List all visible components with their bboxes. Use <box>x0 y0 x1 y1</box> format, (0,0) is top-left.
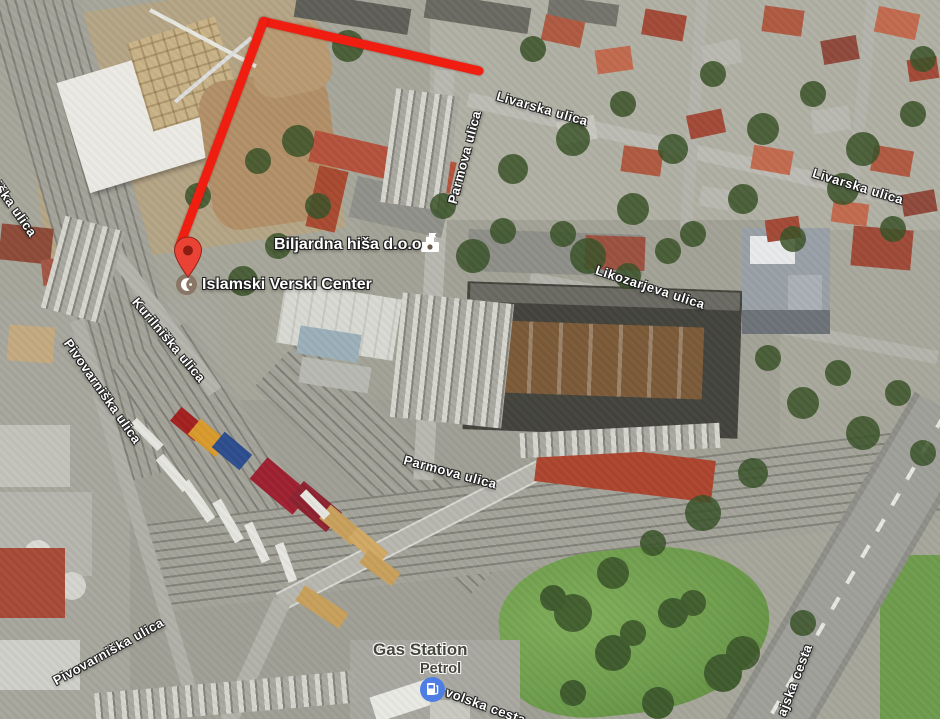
industrial-roof-brown <box>497 320 704 399</box>
red-roof-building <box>850 225 913 270</box>
house-roof <box>620 145 663 176</box>
tan-building <box>7 324 55 363</box>
tree-cluster <box>245 148 271 174</box>
tree-cluster <box>755 345 781 371</box>
poi-label-gas-station[interactable]: Gas Station <box>373 640 467 660</box>
tall-building-section <box>788 275 822 315</box>
satellite-map[interactable]: Biljardna hiša d.o.o Islamski Verski Cen… <box>0 0 940 719</box>
poi-label-biljardna[interactable]: Biljardna hiša d.o.o <box>274 236 422 254</box>
park-tree-cluster <box>540 585 566 611</box>
tall-building-dark <box>742 310 830 334</box>
tree-cluster <box>520 36 546 62</box>
red-section <box>584 235 645 271</box>
poi-label-petrol-brand[interactable]: Petrol <box>420 661 461 677</box>
house-roof <box>761 5 804 36</box>
destination-map-pin-icon[interactable] <box>173 236 203 278</box>
house-roof <box>765 216 802 243</box>
parking-row <box>390 292 514 428</box>
fuel-pump-icon[interactable] <box>420 677 445 702</box>
house-roof <box>907 56 940 82</box>
house-roof <box>595 46 634 75</box>
red-roof-building <box>0 548 65 618</box>
poi-label-islamski[interactable]: Islamski Verski Center <box>202 276 372 294</box>
grey-building <box>0 425 70 487</box>
